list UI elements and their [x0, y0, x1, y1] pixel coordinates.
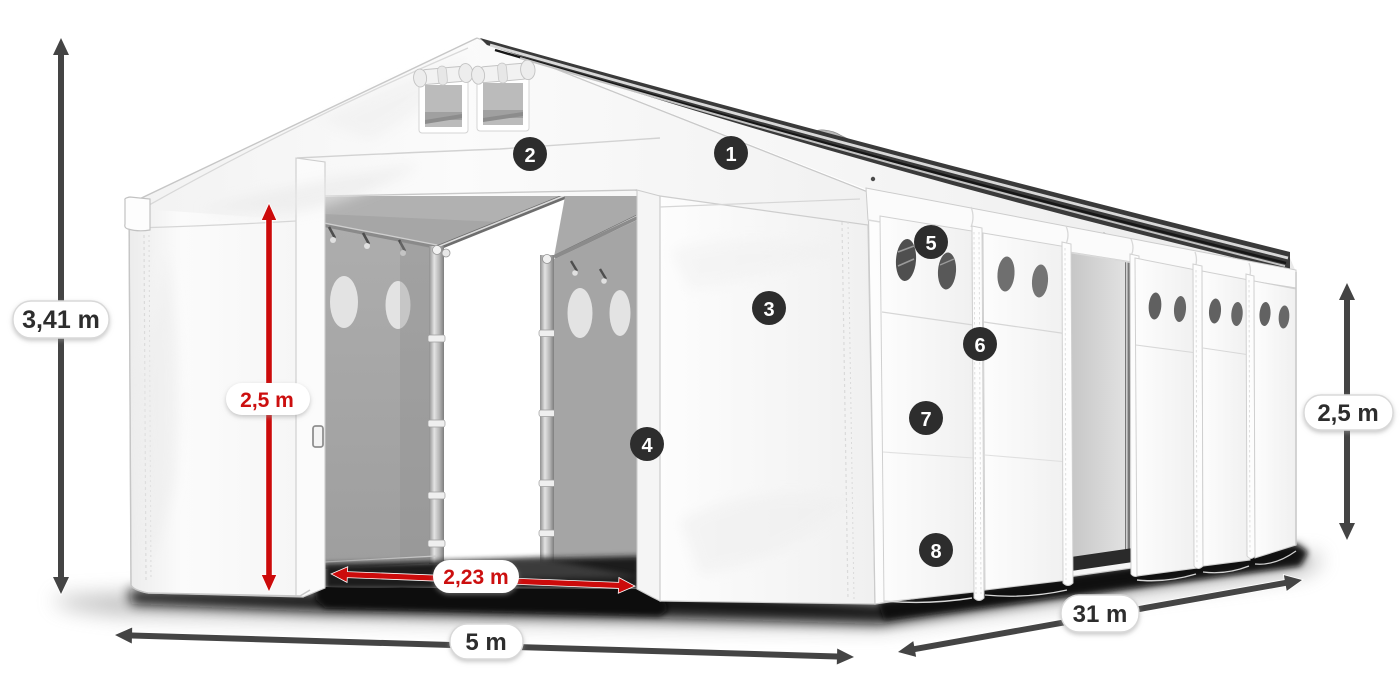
svg-text:3,41 m: 3,41 m — [22, 306, 100, 334]
svg-text:7: 7 — [920, 409, 931, 431]
svg-text:6: 6 — [974, 335, 985, 357]
svg-text:8: 8 — [930, 541, 941, 563]
svg-text:4: 4 — [641, 435, 653, 457]
svg-text:2: 2 — [524, 145, 535, 167]
svg-text:2,5 m: 2,5 m — [240, 389, 294, 412]
svg-text:5: 5 — [925, 233, 936, 255]
svg-text:31 m: 31 m — [1073, 601, 1128, 628]
svg-text:3: 3 — [763, 299, 774, 321]
svg-text:2,5 m: 2,5 m — [1317, 400, 1378, 427]
svg-text:5 m: 5 m — [465, 629, 506, 656]
svg-text:2,23 m: 2,23 m — [443, 566, 508, 589]
svg-text:1: 1 — [725, 144, 736, 166]
